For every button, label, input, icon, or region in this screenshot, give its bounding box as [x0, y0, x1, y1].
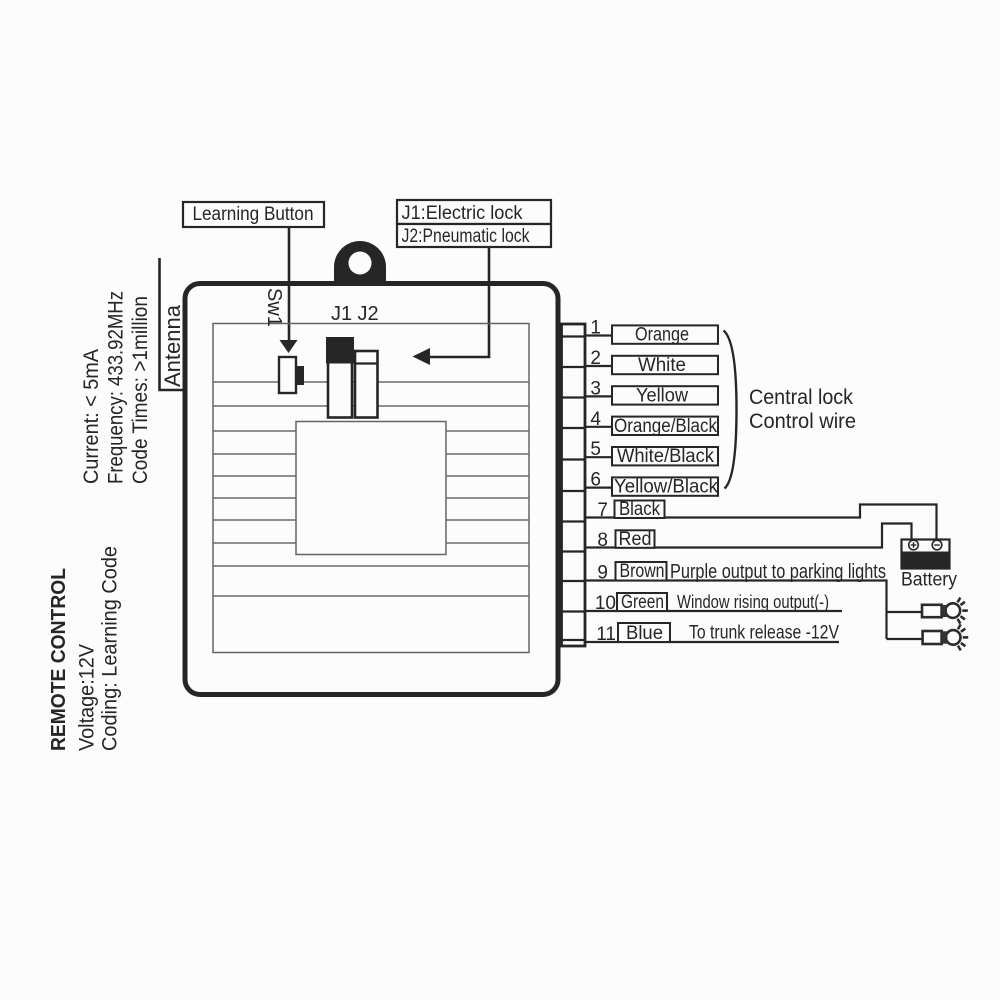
- svg-text:Voltage:12V: Voltage:12V: [76, 644, 99, 751]
- svg-text:Code Times: >1million: Code Times: >1million: [129, 296, 152, 484]
- svg-text:Purple output to parking light: Purple output to parking lights: [670, 561, 886, 583]
- svg-text:Yellow/Black: Yellow/Black: [614, 477, 718, 498]
- svg-text:Green: Green: [621, 592, 664, 613]
- svg-text:J2: J2: [358, 303, 379, 325]
- svg-text:Window rising output(-): Window rising output(-): [677, 592, 829, 612]
- svg-text:Frequency: 433.92MHz: Frequency: 433.92MHz: [105, 291, 128, 484]
- svg-text:Red: Red: [619, 529, 652, 550]
- svg-text:J1:Electric lock: J1:Electric lock: [402, 203, 523, 224]
- svg-text:Coding: Learning Code: Coding: Learning Code: [99, 546, 122, 751]
- svg-text:Central lock: Central lock: [749, 386, 853, 409]
- svg-text:Brown: Brown: [620, 561, 665, 582]
- svg-text:Learning Button: Learning Button: [193, 204, 314, 225]
- svg-text:REMOTE CONTROL: REMOTE CONTROL: [48, 568, 70, 751]
- svg-text:White/Black: White/Black: [617, 446, 714, 467]
- svg-text:Antenna: Antenna: [160, 304, 185, 387]
- svg-text:Blue: Blue: [626, 623, 663, 644]
- svg-text:Yellow: Yellow: [636, 385, 688, 406]
- svg-text:Black: Black: [619, 499, 660, 520]
- svg-text:J1: J1: [331, 303, 352, 325]
- svg-text:Battery: Battery: [901, 570, 957, 591]
- svg-text:Orange: Orange: [635, 325, 689, 346]
- svg-text:J2:Pneumatic lock: J2:Pneumatic lock: [402, 226, 530, 247]
- svg-text:Control wire: Control wire: [749, 410, 856, 433]
- svg-text:To trunk release -12V: To trunk release -12V: [689, 622, 839, 644]
- svg-text:Current: < 5mA: Current: < 5mA: [80, 349, 103, 484]
- svg-text:Orange/Black: Orange/Black: [614, 416, 717, 437]
- svg-text:White: White: [638, 355, 686, 376]
- svg-text:Sw1: Sw1: [263, 288, 285, 327]
